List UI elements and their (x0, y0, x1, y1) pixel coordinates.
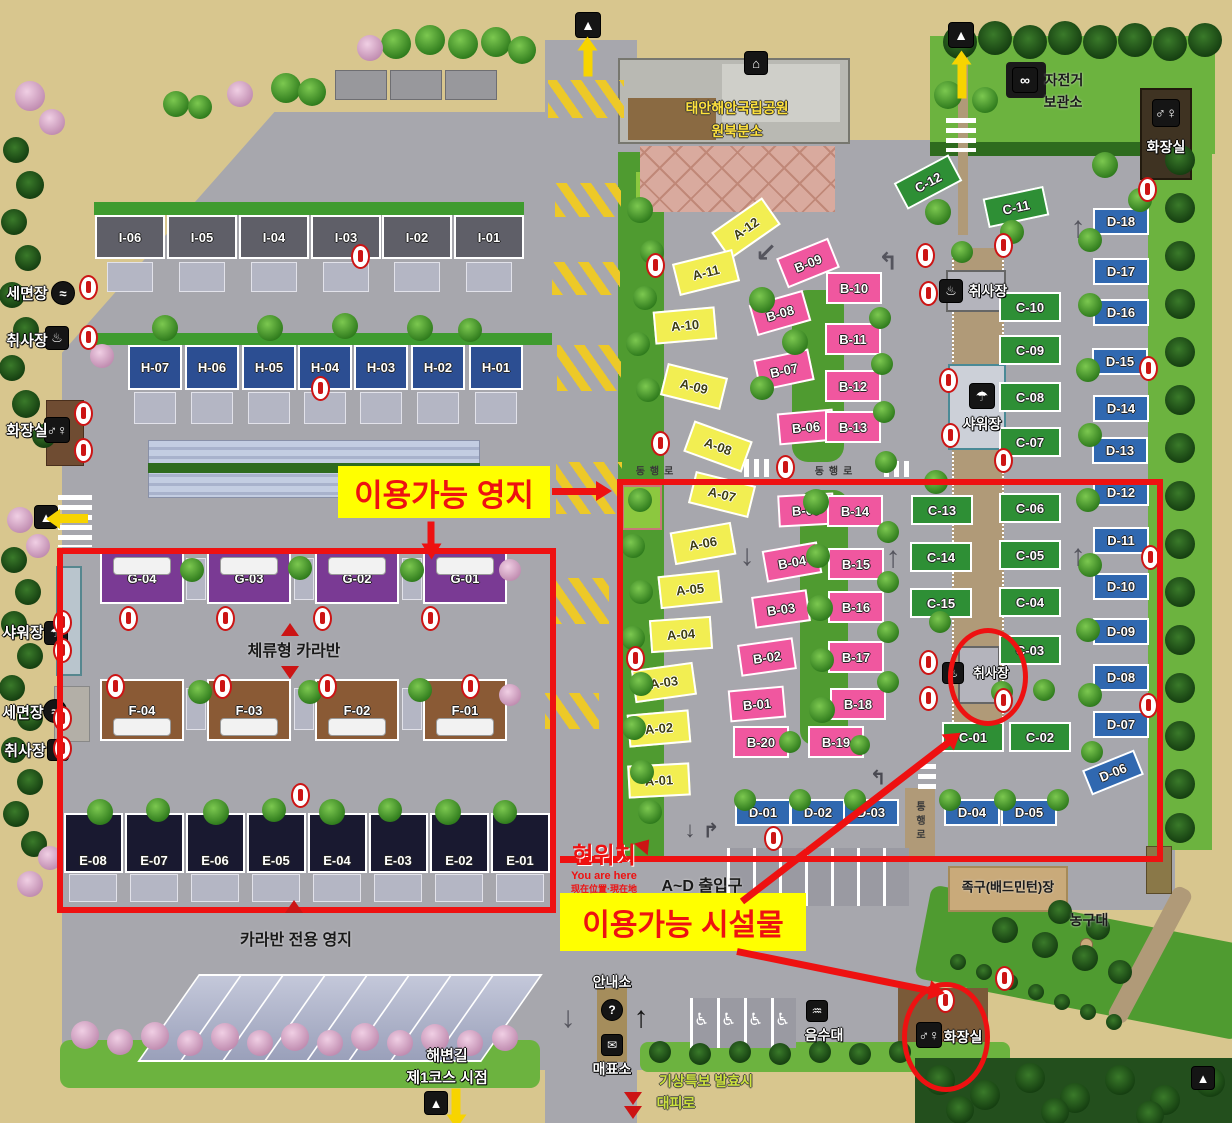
tree-icon (1092, 152, 1118, 178)
blossom-tree-icon (281, 1023, 309, 1051)
site-label: C-09 (1016, 343, 1044, 358)
info-icon: ? (601, 999, 623, 1021)
map-label: 샤워장 (963, 414, 1002, 434)
site-label: C-12 (912, 169, 944, 195)
site-label: C-11 (1001, 197, 1031, 217)
map-label: 자전거 (1045, 70, 1084, 90)
ticket-icon: ✉ (601, 1034, 623, 1056)
site-label: B-10 (840, 281, 868, 296)
pine-tree-icon (976, 964, 992, 980)
yellow-arrow (58, 514, 88, 523)
site-label: H-05 (255, 360, 283, 375)
map-label: 화장실 (1147, 137, 1186, 157)
map-label: 취사장 (6, 330, 47, 351)
tree-icon (298, 78, 326, 106)
pine-tree-icon (1032, 932, 1058, 958)
site-label: D-14 (1107, 401, 1135, 416)
blossom-tree-icon (71, 1021, 99, 1049)
parking-pad (445, 70, 497, 100)
map-label: 원북분소 (711, 121, 763, 141)
site-cell-I-04: I-04 (239, 215, 309, 259)
you-are-here-ko: 현위치 (566, 836, 642, 870)
blossom-tree-icon (39, 109, 65, 135)
fire-extinguisher-icon (79, 325, 98, 350)
parking-pad (107, 262, 153, 292)
blossom-tree-icon (141, 1022, 169, 1050)
site-label: A-11 (691, 261, 721, 282)
yellow-hatch-zone (557, 345, 621, 391)
map-label: 동행로 (815, 463, 858, 478)
fire-extinguisher-icon (79, 275, 98, 300)
tree-icon (1078, 293, 1102, 317)
road-arrow-icon: ↓ (561, 1001, 576, 1035)
site-cell-A-10: A-10 (653, 306, 718, 344)
pine-tree-icon (1041, 1098, 1069, 1123)
site-label: B-09 (792, 251, 824, 275)
tree-icon (749, 287, 775, 313)
map-label: 매표소 (593, 1059, 632, 1079)
tree-icon (925, 199, 951, 225)
site-label: D-17 (1107, 264, 1135, 279)
map-label: 샤워장 (2, 622, 43, 643)
pine-tree-icon (1165, 625, 1195, 655)
pine-tree-icon (1165, 193, 1195, 223)
fire-extinguisher-icon (651, 431, 670, 456)
pine-tree-icon (1083, 25, 1117, 59)
site-label: I-03 (335, 230, 357, 245)
tree-icon (381, 29, 411, 59)
site-label: D-18 (1107, 214, 1135, 229)
parking-pad (475, 392, 517, 424)
pine-tree-icon (1015, 1063, 1045, 1093)
site-label: D-15 (1106, 354, 1134, 369)
site-label: A-08 (702, 434, 734, 458)
tree-icon (750, 376, 774, 400)
tree-icon (257, 315, 283, 341)
site-label: B-13 (839, 420, 867, 435)
pine-tree-icon (1028, 984, 1044, 1000)
site-label: H-07 (141, 360, 169, 375)
map-label: 세면장 (6, 283, 47, 304)
fire-extinguisher-icon (776, 455, 795, 480)
tree-icon (415, 25, 445, 55)
map-label: 세면장 (2, 702, 43, 723)
site-cell-I-01: I-01 (454, 215, 524, 259)
grass-strip-i-row (94, 202, 524, 215)
site-label: H-01 (482, 360, 510, 375)
site-cell-C-09: C-09 (999, 335, 1061, 365)
pine-tree-icon (649, 1041, 671, 1063)
tree-icon (271, 73, 301, 103)
pine-tree-icon (1054, 994, 1070, 1010)
cooking-highlight-circle (948, 628, 1028, 726)
map-label: 음수대 (805, 1025, 844, 1045)
blossom-tree-icon (351, 1023, 379, 1051)
pine-tree-icon (1072, 945, 1098, 971)
wheelchair-icon: ♿ (694, 1010, 709, 1030)
pine-tree-icon (1106, 1014, 1122, 1030)
site-label: I-01 (478, 230, 500, 245)
fire-extinguisher-icon (311, 376, 330, 401)
tree-icon (1078, 423, 1102, 447)
site-cell-H-01: H-01 (469, 345, 523, 390)
pine-tree-icon (992, 917, 1018, 943)
map-label: 대피로 (657, 1093, 696, 1113)
pine-tree-icon (1165, 481, 1195, 511)
pine-tree-icon (17, 643, 43, 669)
map-label: 농구대 (1070, 910, 1109, 930)
pine-tree-icon (1165, 673, 1195, 703)
wheelchair-icon: ♿ (721, 1010, 736, 1030)
available-sites-label: 이용가능 영지 (338, 466, 550, 518)
site-label: H-06 (198, 360, 226, 375)
pine-tree-icon (946, 1096, 974, 1123)
toilet-icon: ♂♀ (44, 417, 70, 443)
pine-tree-icon (1118, 23, 1152, 57)
evacuation-chevron-1 (624, 1092, 642, 1105)
fire-extinguisher-icon (351, 244, 370, 269)
red-annotation-arrow (428, 522, 435, 546)
fire-extinguisher-icon (916, 243, 935, 268)
hiker-icon: ▲ (1191, 1066, 1215, 1090)
you-are-here-cn: 现在位置·現在地 (566, 882, 642, 895)
pine-tree-icon (1165, 433, 1195, 463)
available-sites-red-box (57, 548, 556, 913)
parking-pad (251, 262, 297, 292)
cooking-icon: ♨ (939, 279, 963, 303)
parking-pad (248, 392, 290, 424)
tree-icon (951, 241, 973, 263)
site-label: H-04 (311, 360, 339, 375)
site-cell-B-10: B-10 (826, 272, 882, 304)
map-label: 안내소 (593, 972, 632, 992)
map-label: 해변길 (426, 1045, 467, 1066)
road-arrow-icon: ↑ (634, 1001, 649, 1035)
site-cell-I-06: I-06 (95, 215, 165, 259)
blossom-tree-icon (211, 1023, 239, 1051)
pine-tree-icon (1165, 577, 1195, 607)
site-label: I-02 (406, 230, 428, 245)
you-are-here-marker: 현위치 You are here 现在位置·現在地 (566, 836, 642, 895)
blossom-tree-icon (247, 1030, 273, 1056)
map-label: 취사장 (969, 281, 1008, 301)
fire-extinguisher-icon (74, 438, 93, 463)
tree-icon (972, 87, 998, 113)
site-label: D-13 (1106, 443, 1134, 458)
pine-tree-icon (1048, 900, 1072, 924)
site-label: H-02 (424, 360, 452, 375)
tree-icon (448, 29, 478, 59)
available-area-red-box (617, 479, 1163, 862)
fire-extinguisher-icon (919, 281, 938, 306)
pine-tree-icon (729, 1041, 751, 1063)
parking-pad (335, 70, 387, 100)
map-label: 보관소 (1044, 92, 1083, 112)
pine-tree-icon (1165, 289, 1195, 319)
pine-tree-icon (1165, 529, 1195, 559)
pine-tree-icon (15, 245, 41, 271)
blossom-tree-icon (15, 81, 45, 111)
cooking-icon: ♨ (45, 326, 69, 350)
pine-tree-icon (16, 171, 44, 199)
parking-pad (417, 392, 459, 424)
parking-pad (191, 392, 233, 424)
pine-tree-icon (1080, 1004, 1096, 1020)
yellow-hatch-zone (552, 262, 620, 295)
fire-extinguisher-icon (646, 253, 665, 278)
pine-tree-icon (1165, 337, 1195, 367)
site-cell-C-08: C-08 (999, 382, 1061, 412)
tree-icon (626, 332, 650, 356)
pine-tree-icon (1165, 721, 1195, 751)
blossom-tree-icon (26, 534, 50, 558)
tree-icon (782, 329, 808, 355)
site-label: I-06 (119, 230, 141, 245)
you-are-here-en: You are here (566, 870, 642, 882)
site-cell-I-03: I-03 (311, 215, 381, 259)
parking-pad (134, 392, 176, 424)
pine-tree-icon (1136, 1101, 1164, 1123)
toilet-icon: ♂♀ (1152, 99, 1180, 127)
pine-tree-icon (769, 1043, 791, 1065)
pine-tree-icon (1153, 27, 1187, 61)
map-label: 태안해안국립공원 (685, 98, 788, 118)
yellow-hatch-zone (548, 80, 624, 118)
site-label: C-10 (1016, 300, 1044, 315)
parking-pad (390, 70, 442, 100)
pine-tree-icon (1165, 241, 1195, 271)
tree-icon (508, 36, 536, 64)
site-cell-C-10: C-10 (999, 292, 1061, 322)
available-sites-text: 이용가능 영지 (354, 470, 534, 515)
pine-tree-icon (12, 390, 40, 418)
campground-map: 이용가능 영지 이용가능 시설물 현위치 You are here 现在位置·現… (0, 0, 1232, 1123)
tree-icon (873, 401, 895, 423)
fire-extinguisher-icon (994, 448, 1013, 473)
blossom-tree-icon (107, 1029, 133, 1055)
site-cell-D-17: D-17 (1093, 258, 1149, 285)
site-label: A-10 (670, 316, 699, 333)
tree-icon (332, 313, 358, 339)
wheelchair-icon: ♿ (775, 1010, 790, 1030)
road-arrow-icon: ↑ (1071, 211, 1086, 245)
site-cell-B-12: B-12 (825, 370, 881, 402)
tree-icon (871, 353, 893, 375)
site-label: I-05 (191, 230, 213, 245)
map-label: 동행로 (636, 463, 679, 478)
hiker-icon: ▲ (424, 1091, 448, 1115)
pine-tree-icon (1165, 769, 1195, 799)
site-cell-D-14: D-14 (1093, 395, 1149, 422)
pine-tree-icon (970, 1080, 1000, 1110)
blossom-tree-icon (177, 1030, 203, 1056)
available-facilities-text: 이용가능 시설물 (582, 900, 784, 944)
site-label: B-12 (839, 379, 867, 394)
bike-icon: ∞ (1012, 67, 1038, 93)
blossom-tree-icon (7, 507, 33, 533)
shower-icon: ☂ (969, 383, 995, 409)
parking-pad (179, 262, 225, 292)
pine-tree-icon (1013, 25, 1047, 59)
blossom-tree-icon (357, 35, 383, 61)
site-cell-B-13: B-13 (825, 411, 881, 443)
site-label: B-07 (769, 360, 800, 381)
pine-tree-icon (950, 954, 966, 970)
yellow-arrow (452, 1089, 461, 1117)
site-cell-H-06: H-06 (185, 345, 239, 390)
blossom-tree-icon (387, 1030, 413, 1056)
fire-extinguisher-icon (1139, 356, 1158, 381)
blossom-tree-icon (17, 871, 43, 897)
pine-tree-icon (1, 209, 27, 235)
site-label: C-08 (1016, 390, 1044, 405)
tree-icon (636, 378, 660, 402)
site-label: C-07 (1016, 435, 1044, 450)
fire-extinguisher-icon (1138, 177, 1157, 202)
site-cell-I-02: I-02 (382, 215, 452, 259)
road-arrow-icon: ↰ (878, 248, 898, 277)
site-label: B-06 (791, 418, 820, 435)
e-row-triangle (285, 900, 303, 913)
blossom-tree-icon (227, 81, 253, 107)
tree-icon (188, 95, 212, 119)
pine-tree-icon (1105, 1065, 1135, 1095)
tree-icon (163, 91, 189, 117)
pine-tree-icon (1188, 23, 1222, 57)
tree-icon (481, 27, 511, 57)
tree-icon (633, 286, 657, 310)
pine-tree-icon (1165, 385, 1195, 415)
map-label: 취사장 (4, 740, 45, 761)
hiker-icon: ▲ (575, 12, 601, 38)
hiker-icon: ▲ (948, 22, 974, 48)
site-cell-H-07: H-07 (128, 345, 182, 390)
site-label: D-16 (1107, 305, 1135, 320)
fire-extinguisher-icon (995, 966, 1014, 991)
crosswalk (946, 118, 976, 152)
pine-tree-icon (1108, 960, 1132, 984)
site-label: H-03 (367, 360, 395, 375)
parking-pad (360, 392, 402, 424)
tree-icon (407, 315, 433, 341)
site-cell-H-03: H-03 (354, 345, 408, 390)
fire-extinguisher-icon (939, 368, 958, 393)
available-facilities-label: 이용가능 시설물 (560, 893, 806, 951)
pine-tree-icon (17, 769, 43, 795)
yellow-hatch-zone (555, 183, 621, 217)
plaza-tiles (640, 146, 835, 212)
pine-tree-icon (0, 355, 25, 381)
blossom-tree-icon (317, 1030, 343, 1056)
pine-tree-icon (1, 547, 27, 573)
yellow-arrow (958, 63, 967, 99)
washbasin-icon: ≈ (51, 281, 75, 305)
site-cell-B-11: B-11 (825, 323, 881, 355)
toilet-highlight-circle (902, 982, 990, 1092)
crosswalk (744, 459, 774, 477)
site-cell-H-02: H-02 (411, 345, 465, 390)
red-annotation-arrow (552, 488, 598, 495)
site-label: B-11 (839, 332, 866, 347)
parking-pad (394, 262, 440, 292)
fire-extinguisher-icon (994, 233, 1013, 258)
evacuation-chevron-2 (624, 1106, 642, 1119)
drink-icon: ♒ (806, 1000, 828, 1022)
tree-icon (458, 318, 482, 342)
tree-icon (1076, 358, 1100, 382)
tree-icon (875, 451, 897, 473)
site-label: A-09 (679, 375, 710, 396)
tree-icon (627, 197, 653, 223)
pine-tree-icon (3, 137, 29, 163)
map-label: 화장실 (6, 420, 47, 441)
yellow-hatch-zone (551, 578, 609, 624)
fire-extinguisher-icon (941, 423, 960, 448)
tree-icon (152, 315, 178, 341)
pine-tree-icon (689, 1043, 711, 1065)
pine-tree-icon (3, 801, 29, 827)
office-icon: ⌂ (744, 51, 768, 75)
map-label: 카라반 전용 영지 (240, 926, 352, 950)
wheelchair-icon: ♿ (748, 1010, 763, 1030)
pine-tree-icon (1165, 813, 1195, 843)
yellow-arrow (584, 49, 593, 77)
site-label: I-04 (263, 230, 285, 245)
site-cell-H-05: H-05 (242, 345, 296, 390)
map-label: 족구(배드민턴)장 (962, 877, 1054, 896)
road-arrow-icon: ↙ (755, 238, 777, 269)
parking-pad (466, 262, 512, 292)
pine-tree-icon (1048, 21, 1082, 55)
tree-icon (869, 307, 891, 329)
map-label: 제1코스 시점 (406, 1067, 488, 1088)
map-label: 기상특보 발효시 (659, 1071, 753, 1091)
pine-tree-icon (15, 579, 41, 605)
pine-tree-icon (0, 675, 25, 701)
pine-tree-icon (849, 1043, 871, 1065)
site-cell-I-05: I-05 (167, 215, 237, 259)
blossom-tree-icon (492, 1025, 518, 1051)
fire-extinguisher-icon (74, 401, 93, 426)
pine-tree-icon (978, 21, 1012, 55)
